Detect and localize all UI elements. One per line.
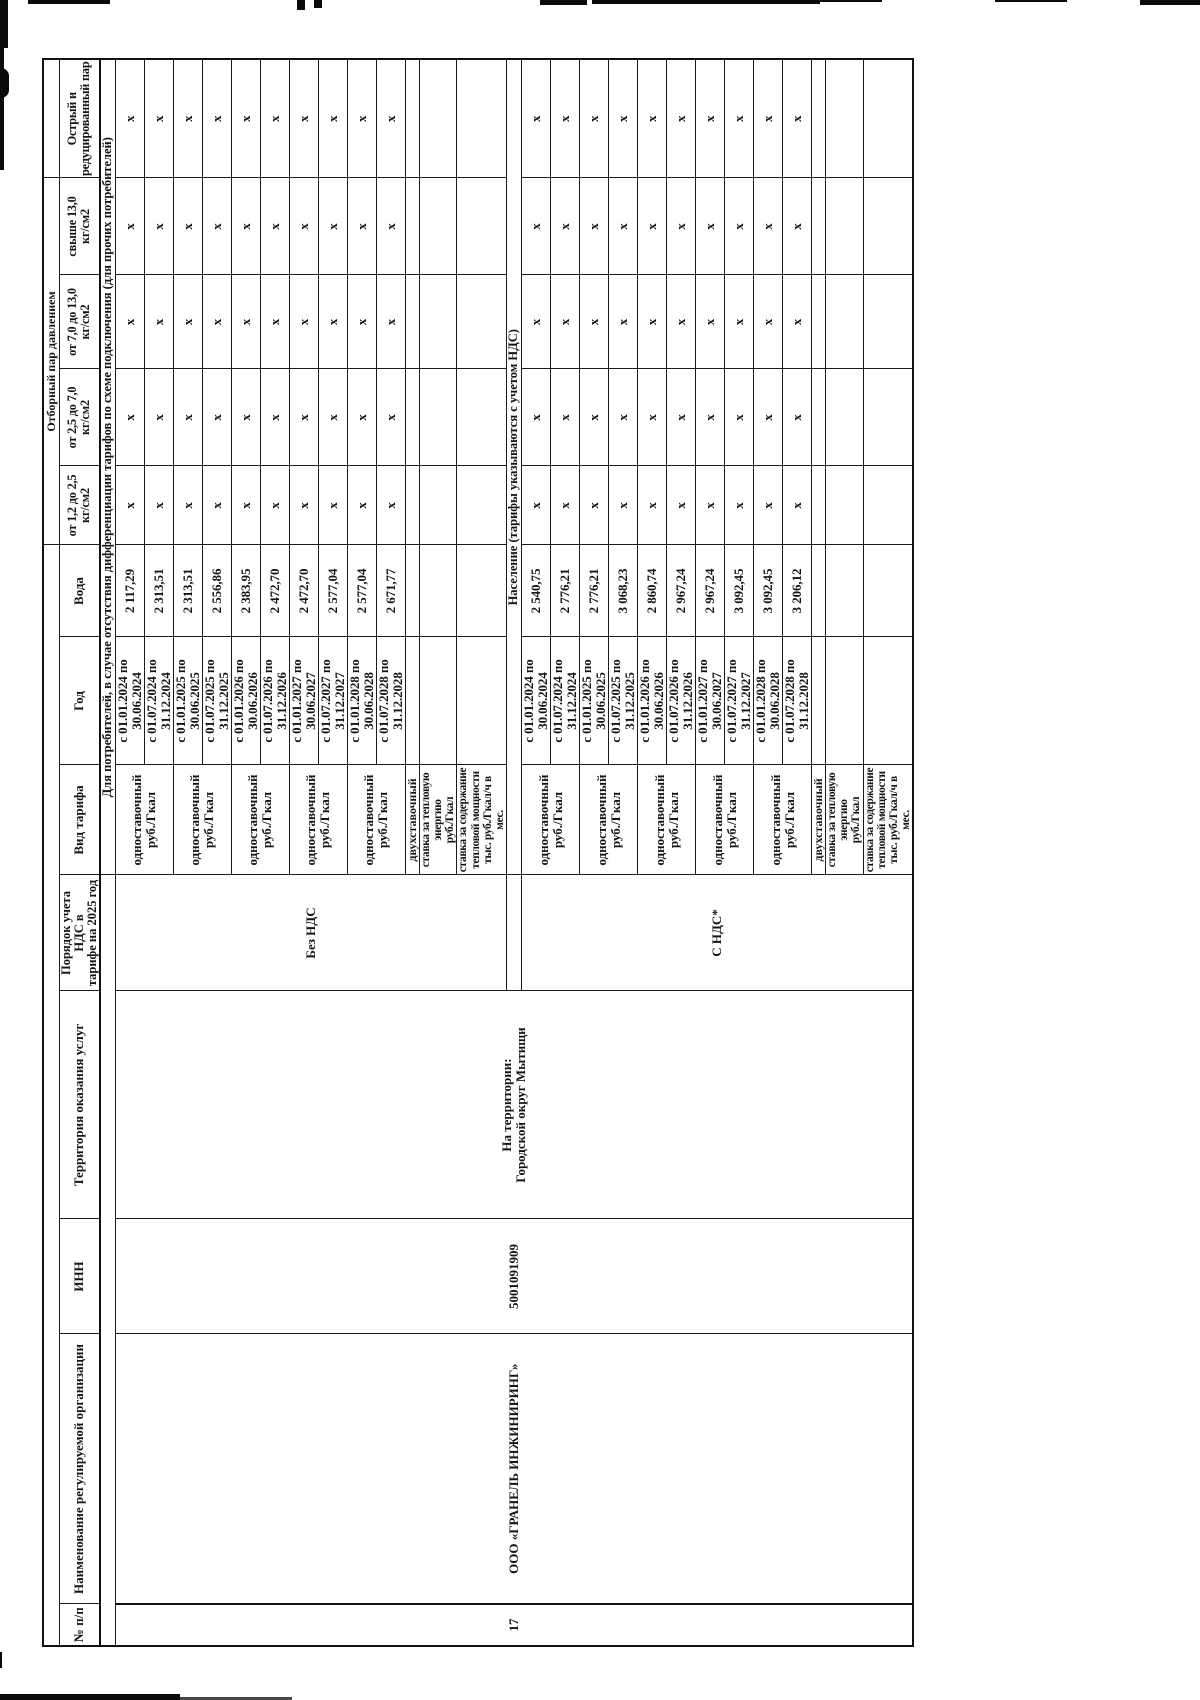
header-num: № п/п bbox=[59, 1604, 100, 1646]
water-empty bbox=[457, 545, 507, 637]
year-period: с 01.07.2026 по 31.12.2026 bbox=[260, 637, 289, 765]
section-row: Для потребителей, в случае отсутствия ди… bbox=[100, 59, 115, 1646]
water-tariff: 2 313,51 bbox=[144, 545, 173, 637]
year-empty bbox=[457, 637, 507, 765]
tariff-table: Отборный пар давлением № п/п Наименовани… bbox=[42, 58, 914, 1647]
water-tariff: 2 117,29 bbox=[115, 545, 144, 637]
x-mark: х bbox=[522, 466, 551, 545]
x-mark: х bbox=[754, 275, 783, 369]
x-mark: х bbox=[580, 178, 609, 275]
scan-artifact-bottom-dash bbox=[0, 1652, 2, 1668]
header-spacer-right bbox=[43, 59, 59, 178]
x-mark: х bbox=[289, 466, 318, 545]
entry-organization: ООО «ГРАНЕЛЬ ИНЖИНИРИНГ» bbox=[115, 1334, 913, 1604]
x-mark: х bbox=[638, 178, 667, 275]
water-tariff: 3 092,45 bbox=[725, 545, 754, 637]
x-mark: х bbox=[347, 369, 376, 466]
water-tariff: 3 206,12 bbox=[783, 545, 812, 637]
tariff-type: одноставочный руб./Гкал bbox=[522, 765, 580, 875]
x-mark: х bbox=[609, 178, 638, 275]
x-mark: х bbox=[667, 275, 696, 369]
header-row: № п/п Наименование регулируемой организа… bbox=[59, 59, 100, 1646]
tariff-type: ставка за содержание тепловой мощности т… bbox=[457, 765, 507, 875]
tariff-type: двухставочный bbox=[405, 765, 419, 875]
x-mark: х bbox=[260, 466, 289, 545]
x-mark: х bbox=[144, 275, 173, 369]
mark-empty bbox=[863, 59, 913, 178]
x-mark: х bbox=[725, 59, 754, 178]
x-mark: х bbox=[696, 466, 725, 545]
x-mark: х bbox=[667, 178, 696, 275]
x-mark: х bbox=[144, 466, 173, 545]
mark-empty bbox=[457, 369, 507, 466]
x-mark: х bbox=[260, 275, 289, 369]
mark-empty bbox=[419, 275, 457, 369]
header-pressure-1: от 1,2 до 2,5 кг/см2 bbox=[59, 466, 100, 545]
x-mark: х bbox=[347, 466, 376, 545]
x-mark: х bbox=[754, 369, 783, 466]
x-mark: х bbox=[231, 178, 260, 275]
header-pressure-4: свыше 13,0 кг/см2 bbox=[59, 178, 100, 275]
x-mark: х bbox=[260, 369, 289, 466]
year-period: с 01.07.2025 по 31.12.2025 bbox=[609, 637, 638, 765]
section-title: Для потребителей, в случае отсутствия ди… bbox=[100, 59, 115, 875]
x-mark: х bbox=[376, 275, 405, 369]
x-mark: х bbox=[318, 59, 347, 178]
tariff-type: одноставочный руб./Гкал bbox=[754, 765, 812, 875]
water-tariff: 2 860,74 bbox=[638, 545, 667, 637]
header-group-row: Отборный пар давлением bbox=[43, 59, 59, 1646]
x-mark: х bbox=[260, 59, 289, 178]
header-spacer-left bbox=[43, 545, 59, 1646]
x-mark: х bbox=[144, 178, 173, 275]
water-tariff: 3 068,23 bbox=[609, 545, 638, 637]
water-tariff: 2 776,21 bbox=[551, 545, 580, 637]
tariff-row: 17ООО «ГРАНЕЛЬ ИНЖИНИРИНГ»5001091909На т… bbox=[115, 59, 144, 1646]
x-mark: х bbox=[376, 466, 405, 545]
x-mark: х bbox=[754, 466, 783, 545]
tariff-type: одноставочный руб./Гкал bbox=[696, 765, 754, 875]
mark-empty bbox=[812, 178, 826, 275]
water-empty bbox=[826, 545, 864, 637]
x-mark: х bbox=[696, 369, 725, 466]
year-period: с 01.01.2026 по 30.06.2026 bbox=[231, 637, 260, 765]
x-mark: х bbox=[667, 466, 696, 545]
year-period: с 01.07.2024 по 31.12.2024 bbox=[144, 637, 173, 765]
mark-empty bbox=[826, 59, 864, 178]
water-empty bbox=[812, 545, 826, 637]
water-tariff: 2 577,04 bbox=[347, 545, 376, 637]
x-mark: х bbox=[551, 466, 580, 545]
x-mark: х bbox=[638, 59, 667, 178]
scan-artifact-top-line bbox=[1140, 0, 1200, 5]
x-mark: х bbox=[202, 369, 231, 466]
x-mark: х bbox=[173, 466, 202, 545]
x-mark: х bbox=[696, 178, 725, 275]
x-mark: х bbox=[609, 369, 638, 466]
mark-empty bbox=[419, 466, 457, 545]
x-mark: х bbox=[580, 275, 609, 369]
tariff-type: одноставочный руб./Гкал bbox=[347, 765, 405, 875]
mark-empty bbox=[863, 275, 913, 369]
header-inn: ИНН bbox=[59, 1219, 100, 1334]
scan-artifact-top-line bbox=[820, 0, 882, 2]
scan-artifact-left-edge bbox=[0, 0, 8, 48]
x-mark: х bbox=[173, 369, 202, 466]
entry-inn: 5001091909 bbox=[115, 1219, 913, 1334]
header-steam: Острый и редуцированный пар bbox=[59, 59, 100, 178]
mark-empty bbox=[812, 275, 826, 369]
x-mark: х bbox=[144, 369, 173, 466]
scan-artifact-top-line bbox=[592, 0, 820, 4]
mark-empty bbox=[457, 275, 507, 369]
x-mark: х bbox=[696, 59, 725, 178]
water-tariff: 2 577,04 bbox=[318, 545, 347, 637]
x-mark: х bbox=[580, 59, 609, 178]
scan-artifact-top-line bbox=[540, 0, 587, 5]
x-mark: х bbox=[144, 59, 173, 178]
x-mark: х bbox=[347, 275, 376, 369]
water-tariff: 2 671,77 bbox=[376, 545, 405, 637]
year-period: с 01.01.2027 по 30.06.2027 bbox=[696, 637, 725, 765]
section-spacer bbox=[507, 875, 522, 991]
x-mark: х bbox=[754, 178, 783, 275]
tariff-type: ставка за тепловую энергию руб./Гкал bbox=[419, 765, 457, 875]
water-tariff: 3 092,45 bbox=[754, 545, 783, 637]
x-mark: х bbox=[783, 275, 812, 369]
year-period: с 01.07.2027 по 31.12.2027 bbox=[725, 637, 754, 765]
header-vat: Порядок учета НДС в тарифе на 2025 год bbox=[59, 875, 100, 991]
x-mark: х bbox=[522, 59, 551, 178]
x-mark: х bbox=[609, 275, 638, 369]
x-mark: х bbox=[580, 369, 609, 466]
x-mark: х bbox=[231, 466, 260, 545]
x-mark: х bbox=[202, 178, 231, 275]
section-spacer bbox=[100, 875, 115, 1646]
scan-artifact-bottom-bar bbox=[0, 1694, 180, 1700]
x-mark: х bbox=[318, 178, 347, 275]
vat-mode: С НДС* bbox=[522, 875, 914, 991]
x-mark: х bbox=[783, 466, 812, 545]
mark-empty bbox=[405, 275, 419, 369]
x-mark: х bbox=[202, 275, 231, 369]
x-mark: х bbox=[551, 178, 580, 275]
tariff-table-body: Для потребителей, в случае отсутствия ди… bbox=[100, 59, 913, 1646]
tariff-type: одноставочный руб./Гкал bbox=[173, 765, 231, 875]
x-mark: х bbox=[638, 369, 667, 466]
x-mark: х bbox=[173, 178, 202, 275]
year-period: с 01.01.2028 по 30.06.2028 bbox=[754, 637, 783, 765]
x-mark: х bbox=[260, 178, 289, 275]
x-mark: х bbox=[376, 59, 405, 178]
water-tariff: 2 540,75 bbox=[522, 545, 551, 637]
x-mark: х bbox=[754, 59, 783, 178]
year-period: с 01.01.2025 по 30.06.2025 bbox=[580, 637, 609, 765]
year-empty bbox=[419, 637, 457, 765]
x-mark: х bbox=[783, 369, 812, 466]
x-mark: х bbox=[289, 369, 318, 466]
x-mark: х bbox=[522, 369, 551, 466]
water-empty bbox=[863, 545, 913, 637]
header-organization: Наименование регулируемой организации bbox=[59, 1334, 100, 1604]
entry-territory: На территории: Городской округ Мытищи bbox=[115, 991, 913, 1219]
x-mark: х bbox=[580, 466, 609, 545]
scan-artifact-top-dash bbox=[297, 0, 305, 10]
mark-empty bbox=[826, 466, 864, 545]
year-period: с 01.07.2028 по 31.12.2028 bbox=[783, 637, 812, 765]
mark-empty bbox=[826, 178, 864, 275]
mark-empty bbox=[826, 369, 864, 466]
year-empty bbox=[863, 637, 913, 765]
scan-artifact-top-dash bbox=[314, 0, 322, 8]
mark-empty bbox=[812, 369, 826, 466]
year-period: с 01.01.2024 по 30.06.2024 bbox=[522, 637, 551, 765]
x-mark: х bbox=[202, 466, 231, 545]
tariff-type: одноставочный руб./Гкал bbox=[289, 765, 347, 875]
x-mark: х bbox=[289, 275, 318, 369]
mark-empty bbox=[405, 178, 419, 275]
section-title: Население (тарифы указываются с учетом Н… bbox=[507, 59, 522, 875]
x-mark: х bbox=[115, 369, 144, 466]
mark-empty bbox=[863, 178, 913, 275]
mark-empty bbox=[405, 466, 419, 545]
water-empty bbox=[419, 545, 457, 637]
entry-number: 17 bbox=[115, 1604, 913, 1646]
header-year: Год bbox=[59, 637, 100, 765]
year-period: с 01.01.2026 по 30.06.2026 bbox=[638, 637, 667, 765]
water-tariff: 2 967,24 bbox=[696, 545, 725, 637]
mark-empty bbox=[812, 59, 826, 178]
x-mark: х bbox=[522, 178, 551, 275]
x-mark: х bbox=[115, 466, 144, 545]
water-empty bbox=[405, 545, 419, 637]
water-tariff: 2 556,86 bbox=[202, 545, 231, 637]
x-mark: х bbox=[667, 59, 696, 178]
year-period: с 01.01.2027 по 30.06.2027 bbox=[289, 637, 318, 765]
x-mark: х bbox=[725, 466, 754, 545]
x-mark: х bbox=[551, 59, 580, 178]
header-pressure-3: от 7,0 до 13,0 кг/см2 bbox=[59, 275, 100, 369]
x-mark: х bbox=[725, 369, 754, 466]
water-tariff: 2 472,70 bbox=[289, 545, 318, 637]
mark-empty bbox=[457, 466, 507, 545]
x-mark: х bbox=[522, 275, 551, 369]
x-mark: х bbox=[115, 59, 144, 178]
x-mark: х bbox=[115, 178, 144, 275]
header-pressure-2: от 2,5 до 7,0 кг/см2 bbox=[59, 369, 100, 466]
x-mark: х bbox=[347, 59, 376, 178]
x-mark: х bbox=[667, 369, 696, 466]
mark-empty bbox=[419, 59, 457, 178]
year-period: с 01.07.2028 по 31.12.2028 bbox=[376, 637, 405, 765]
year-period: с 01.01.2025 по 30.06.2025 bbox=[173, 637, 202, 765]
year-period: с 01.07.2027 по 31.12.2027 bbox=[318, 637, 347, 765]
year-period: с 01.01.2028 по 30.06.2028 bbox=[347, 637, 376, 765]
tariff-type: ставка за тепловую энергию руб./Гкал bbox=[826, 765, 864, 875]
mark-empty bbox=[812, 466, 826, 545]
year-period: с 01.07.2025 по 31.12.2025 bbox=[202, 637, 231, 765]
header-territory: Территория оказания услуг bbox=[59, 991, 100, 1219]
x-mark: х bbox=[696, 275, 725, 369]
mark-empty bbox=[405, 369, 419, 466]
mark-empty bbox=[863, 369, 913, 466]
header-water: Вода bbox=[59, 545, 100, 637]
mark-empty bbox=[419, 369, 457, 466]
water-tariff: 2 472,70 bbox=[260, 545, 289, 637]
mark-empty bbox=[457, 59, 507, 178]
tariff-type: одноставочный руб./Гкал bbox=[638, 765, 696, 875]
x-mark: х bbox=[318, 275, 347, 369]
x-mark: х bbox=[231, 59, 260, 178]
year-period: с 01.07.2026 по 31.12.2026 bbox=[667, 637, 696, 765]
x-mark: х bbox=[202, 59, 231, 178]
x-mark: х bbox=[725, 178, 754, 275]
x-mark: х bbox=[638, 275, 667, 369]
x-mark: х bbox=[115, 275, 144, 369]
tariff-type: ставка за содержание тепловой мощности т… bbox=[863, 765, 913, 875]
tariff-type: одноставочный руб./Гкал bbox=[231, 765, 289, 875]
x-mark: х bbox=[173, 275, 202, 369]
x-mark: х bbox=[551, 369, 580, 466]
mark-empty bbox=[863, 466, 913, 545]
mark-empty bbox=[419, 178, 457, 275]
x-mark: х bbox=[725, 275, 754, 369]
x-mark: х bbox=[347, 178, 376, 275]
x-mark: х bbox=[318, 466, 347, 545]
mark-empty bbox=[405, 59, 419, 178]
year-empty bbox=[812, 637, 826, 765]
scan-artifact-left-blob bbox=[0, 68, 9, 98]
vat-mode: Без НДС bbox=[115, 875, 506, 991]
x-mark: х bbox=[173, 59, 202, 178]
x-mark: х bbox=[231, 275, 260, 369]
rotated-table-container: Отборный пар давлением № п/п Наименовани… bbox=[42, 60, 881, 1647]
x-mark: х bbox=[376, 178, 405, 275]
header-group-steam-pressure: Отборный пар давлением bbox=[43, 178, 59, 545]
x-mark: х bbox=[609, 59, 638, 178]
year-period: с 01.07.2024 по 31.12.2024 bbox=[551, 637, 580, 765]
year-period: с 01.01.2024 по 30.06.2024 bbox=[115, 637, 144, 765]
x-mark: х bbox=[551, 275, 580, 369]
water-tariff: 2 776,21 bbox=[580, 545, 609, 637]
x-mark: х bbox=[609, 466, 638, 545]
year-empty bbox=[405, 637, 419, 765]
x-mark: х bbox=[318, 369, 347, 466]
x-mark: х bbox=[289, 178, 318, 275]
water-tariff: 2 383,95 bbox=[231, 545, 260, 637]
x-mark: х bbox=[783, 59, 812, 178]
scan-artifact-top-line bbox=[995, 0, 1067, 2]
scan-artifact-top-line bbox=[28, 0, 110, 4]
tariff-type: двухставочный bbox=[812, 765, 826, 875]
x-mark: х bbox=[638, 466, 667, 545]
x-mark: х bbox=[783, 178, 812, 275]
tariff-type: одноставочный руб./Гкал bbox=[580, 765, 638, 875]
year-empty bbox=[826, 637, 864, 765]
mark-empty bbox=[457, 178, 507, 275]
water-tariff: 2 313,51 bbox=[173, 545, 202, 637]
header-tariff-type: Вид тарифа bbox=[59, 765, 100, 875]
tariff-type: одноставочный руб./Гкал bbox=[115, 765, 173, 875]
water-tariff: 2 967,24 bbox=[667, 545, 696, 637]
x-mark: х bbox=[289, 59, 318, 178]
x-mark: х bbox=[376, 369, 405, 466]
scanned-document-page: { "table": { "group_header": "Отборный п… bbox=[0, 0, 1200, 1700]
mark-empty bbox=[826, 275, 864, 369]
x-mark: х bbox=[231, 369, 260, 466]
